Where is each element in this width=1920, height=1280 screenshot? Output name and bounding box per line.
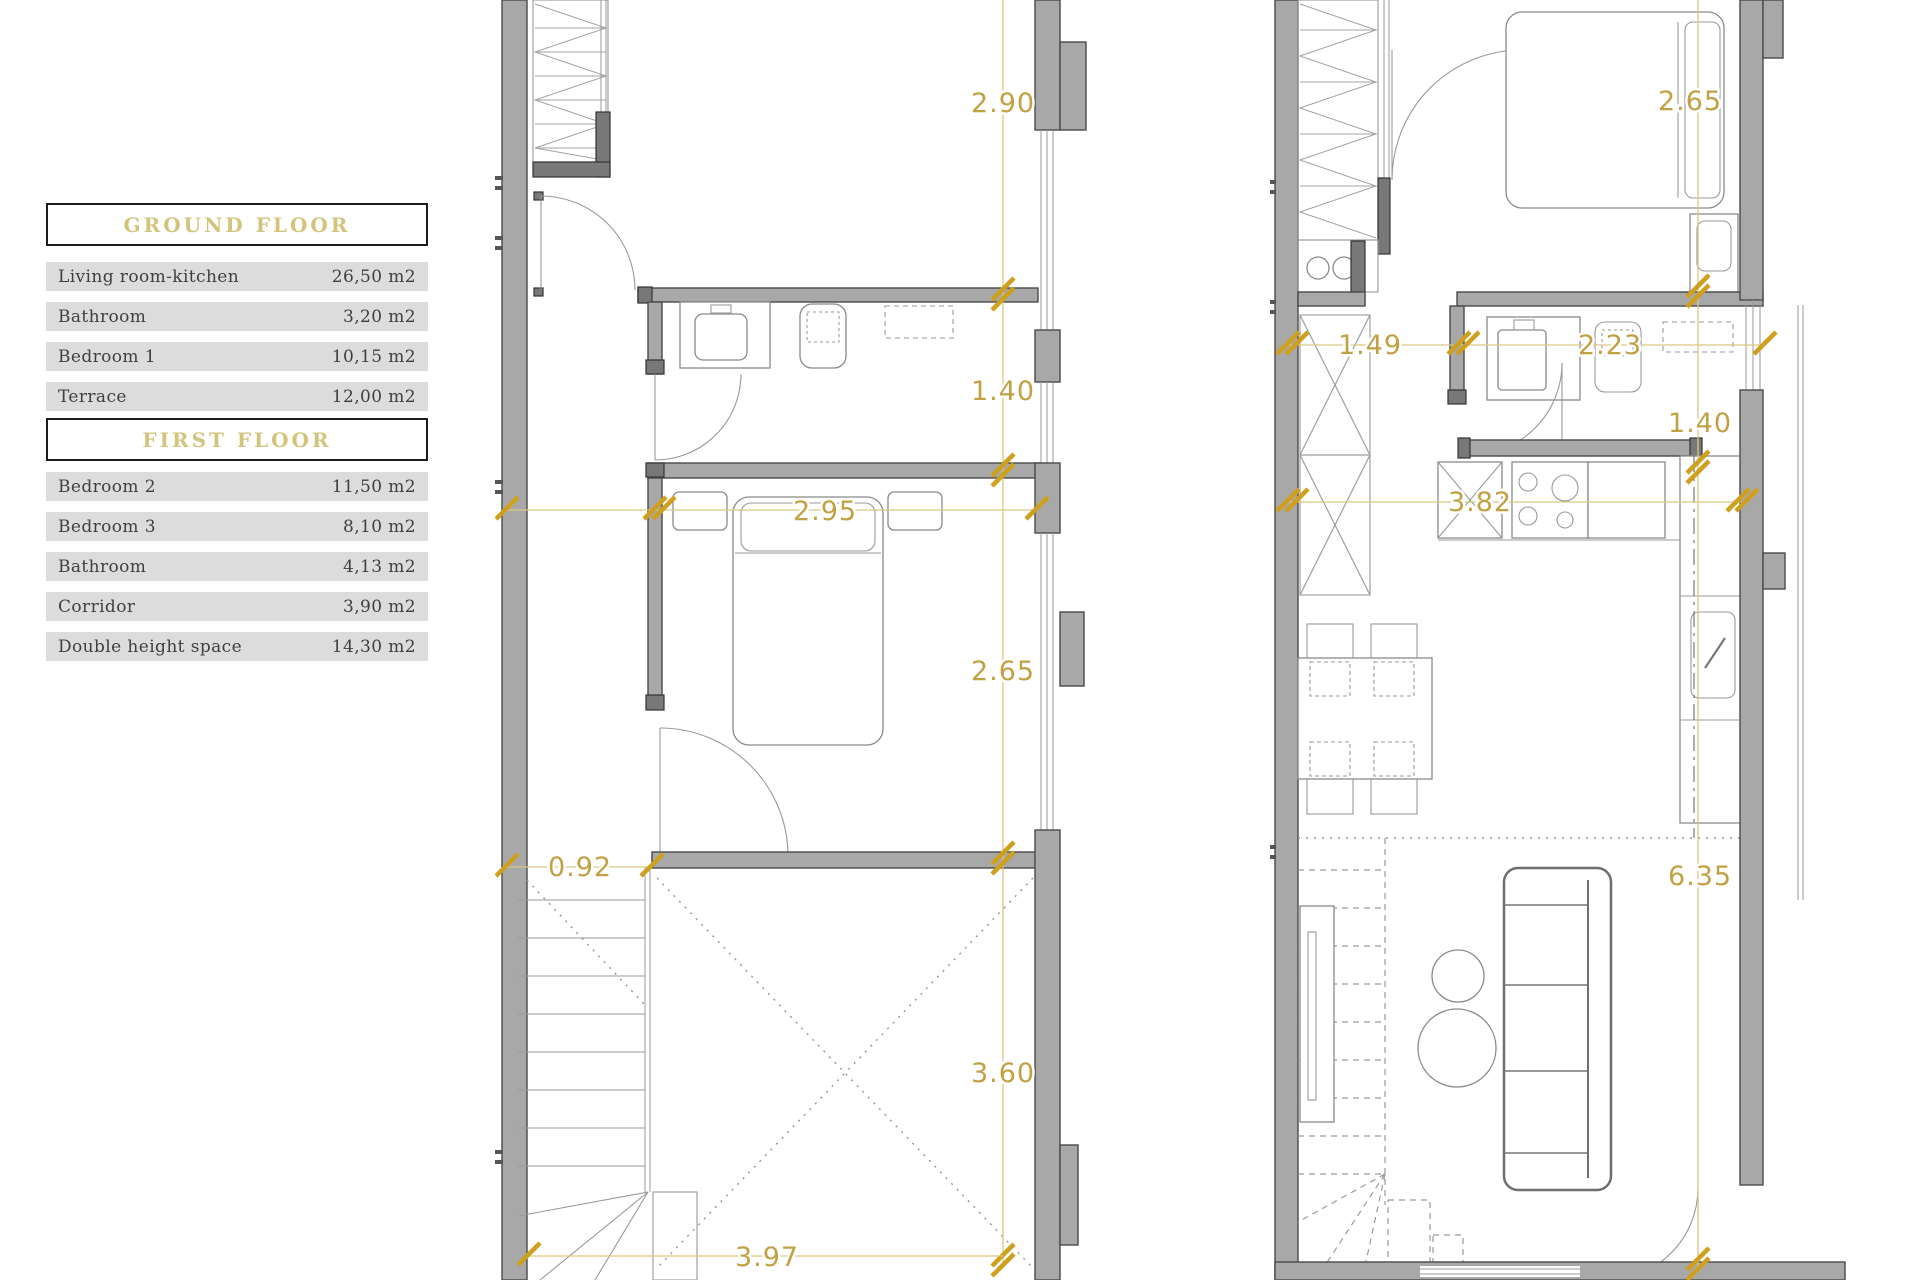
room-area: 11,50 m2 — [332, 477, 416, 497]
dim-label: 3.82 — [1448, 487, 1512, 518]
dim-label: 1.40 — [971, 376, 1035, 407]
dim-label: 1.49 — [1338, 330, 1402, 361]
room-label: Double height space — [58, 637, 242, 657]
living-room — [1298, 838, 1698, 1280]
legend-row: Bathroom 3,20 m2 — [46, 302, 428, 331]
legend-row: Double height space 14,30 m2 — [46, 632, 428, 661]
legend-row: Corridor 3,90 m2 — [46, 592, 428, 621]
room-label: Bathroom — [58, 557, 146, 577]
legend-row: Bedroom 1 10,15 m2 — [46, 342, 428, 371]
dim-label: 2.90 — [971, 88, 1035, 119]
dim-label: 2.65 — [1658, 86, 1722, 117]
dining-table — [1298, 658, 1432, 779]
ground-floor-title: GROUND FLOOR — [124, 213, 351, 237]
dim-label: 3.60 — [971, 1058, 1035, 1089]
bedroom1 — [1392, 12, 1738, 292]
staircase — [1298, 0, 1390, 303]
tv-console — [1300, 906, 1334, 1122]
exterior-wall-right — [1035, 0, 1086, 1280]
double-bed — [733, 497, 883, 745]
room-area: 26,50 m2 — [332, 267, 416, 287]
legend-row: Terrace 12,00 m2 — [46, 382, 428, 411]
bedroom1-door-arc — [1392, 50, 1522, 180]
kitchen-column — [1680, 456, 1745, 823]
room-label: Corridor — [58, 597, 135, 617]
dim-label: 2.23 — [1578, 330, 1642, 361]
counter — [1588, 462, 1665, 538]
bathroom-door-arc — [655, 374, 741, 460]
legend-row: Bathroom 4,13 m2 — [46, 552, 428, 581]
chair — [1307, 624, 1353, 662]
basin — [1307, 257, 1329, 279]
bedroom2-door-arc — [660, 728, 788, 856]
area-legend: GROUND FLOOR Living room-kitchen 26,50 m… — [46, 203, 428, 661]
dim-label: 2.65 — [971, 656, 1035, 687]
room-label: Bedroom 3 — [58, 517, 156, 537]
legend-row: Bedroom 2 11,50 m2 — [46, 472, 428, 501]
sofa — [1504, 868, 1611, 1190]
room-area: 10,15 m2 — [332, 347, 416, 367]
first-floor-plan: 2.90 1.40 2.95 2.65 0.92 3.60 3.97 — [495, 0, 1095, 1280]
stairs-first-floor — [518, 868, 697, 1280]
legend-row: Living room-kitchen 26,50 m2 — [46, 262, 428, 291]
vanity-sink — [1487, 317, 1580, 400]
legend-row: Bedroom 3 8,10 m2 — [46, 512, 428, 541]
first-floor-title: FIRST FLOOR — [142, 428, 331, 452]
room-label: Terrace — [58, 387, 127, 407]
ground-floor-header: GROUND FLOOR — [46, 203, 428, 246]
shower-tray — [1690, 214, 1738, 292]
exterior-wall-left — [1270, 0, 1298, 1280]
dim-label: 6.35 — [1668, 861, 1732, 892]
exterior-wall-left — [495, 0, 527, 1280]
room-area: 3,20 m2 — [343, 307, 416, 327]
bottom-window — [1420, 1266, 1580, 1277]
dim-label: 0.92 — [548, 852, 612, 883]
room-area: 12,00 m2 — [332, 387, 416, 407]
room-label: Bathroom — [58, 307, 146, 327]
room-label: Living room-kitchen — [58, 267, 239, 287]
room-area: 8,10 m2 — [343, 517, 416, 537]
nightstand-right — [888, 492, 942, 530]
dining-set — [1298, 624, 1432, 814]
room-area: 3,90 m2 — [343, 597, 416, 617]
first-floor-header: FIRST FLOOR — [46, 418, 428, 461]
room-area: 4,13 m2 — [343, 557, 416, 577]
room-area: 14,30 m2 — [332, 637, 416, 657]
chair — [1371, 624, 1417, 662]
floorplan-page: GROUND FLOOR Living room-kitchen 26,50 m… — [0, 0, 1920, 1280]
dim-label: 2.95 — [793, 496, 857, 527]
chair — [1371, 776, 1417, 814]
coffee-table — [1418, 1009, 1496, 1087]
coffee-table — [1432, 950, 1484, 1002]
chair — [1307, 776, 1353, 814]
stove — [1512, 462, 1588, 538]
room-label: Bedroom 1 — [58, 347, 156, 367]
ground-floor-plan: 2.65 1.49 2.23 1.40 3.82 6.35 — [1270, 0, 1850, 1280]
washer-dashed — [885, 306, 953, 338]
nightstand-left — [673, 492, 727, 530]
room-label: Bedroom 2 — [58, 477, 156, 497]
vanity-sink — [680, 302, 770, 368]
wardrobe — [533, 0, 610, 177]
bathroom-first-floor — [638, 287, 1038, 460]
dim-label: 1.40 — [1668, 408, 1732, 439]
bedroom3-door — [534, 192, 635, 296]
toilet — [800, 304, 846, 368]
dim-label: 3.97 — [735, 1242, 799, 1273]
